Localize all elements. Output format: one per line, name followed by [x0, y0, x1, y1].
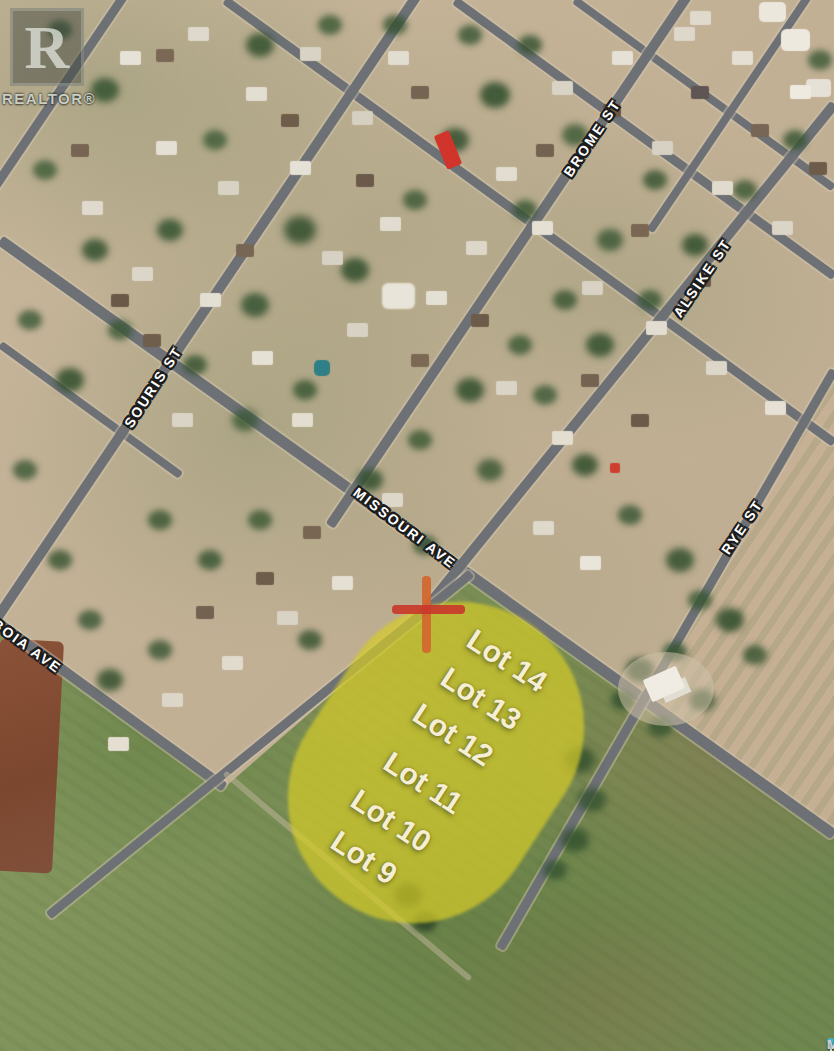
realtor-logo: R [10, 8, 84, 86]
satellite-map: SOURIS ST BROME ST ALSIKE ST RYE ST MISS… [0, 0, 834, 1051]
realtor-watermark-text: REALTOR® [2, 90, 96, 107]
realtor-logo-letter: R [25, 16, 70, 78]
accent-roofs [0, 0, 5, 5]
mls-label: MLS® [827, 1037, 834, 1051]
cross-marker-horizontal [392, 605, 465, 614]
cross-marker-vertical [422, 576, 431, 653]
